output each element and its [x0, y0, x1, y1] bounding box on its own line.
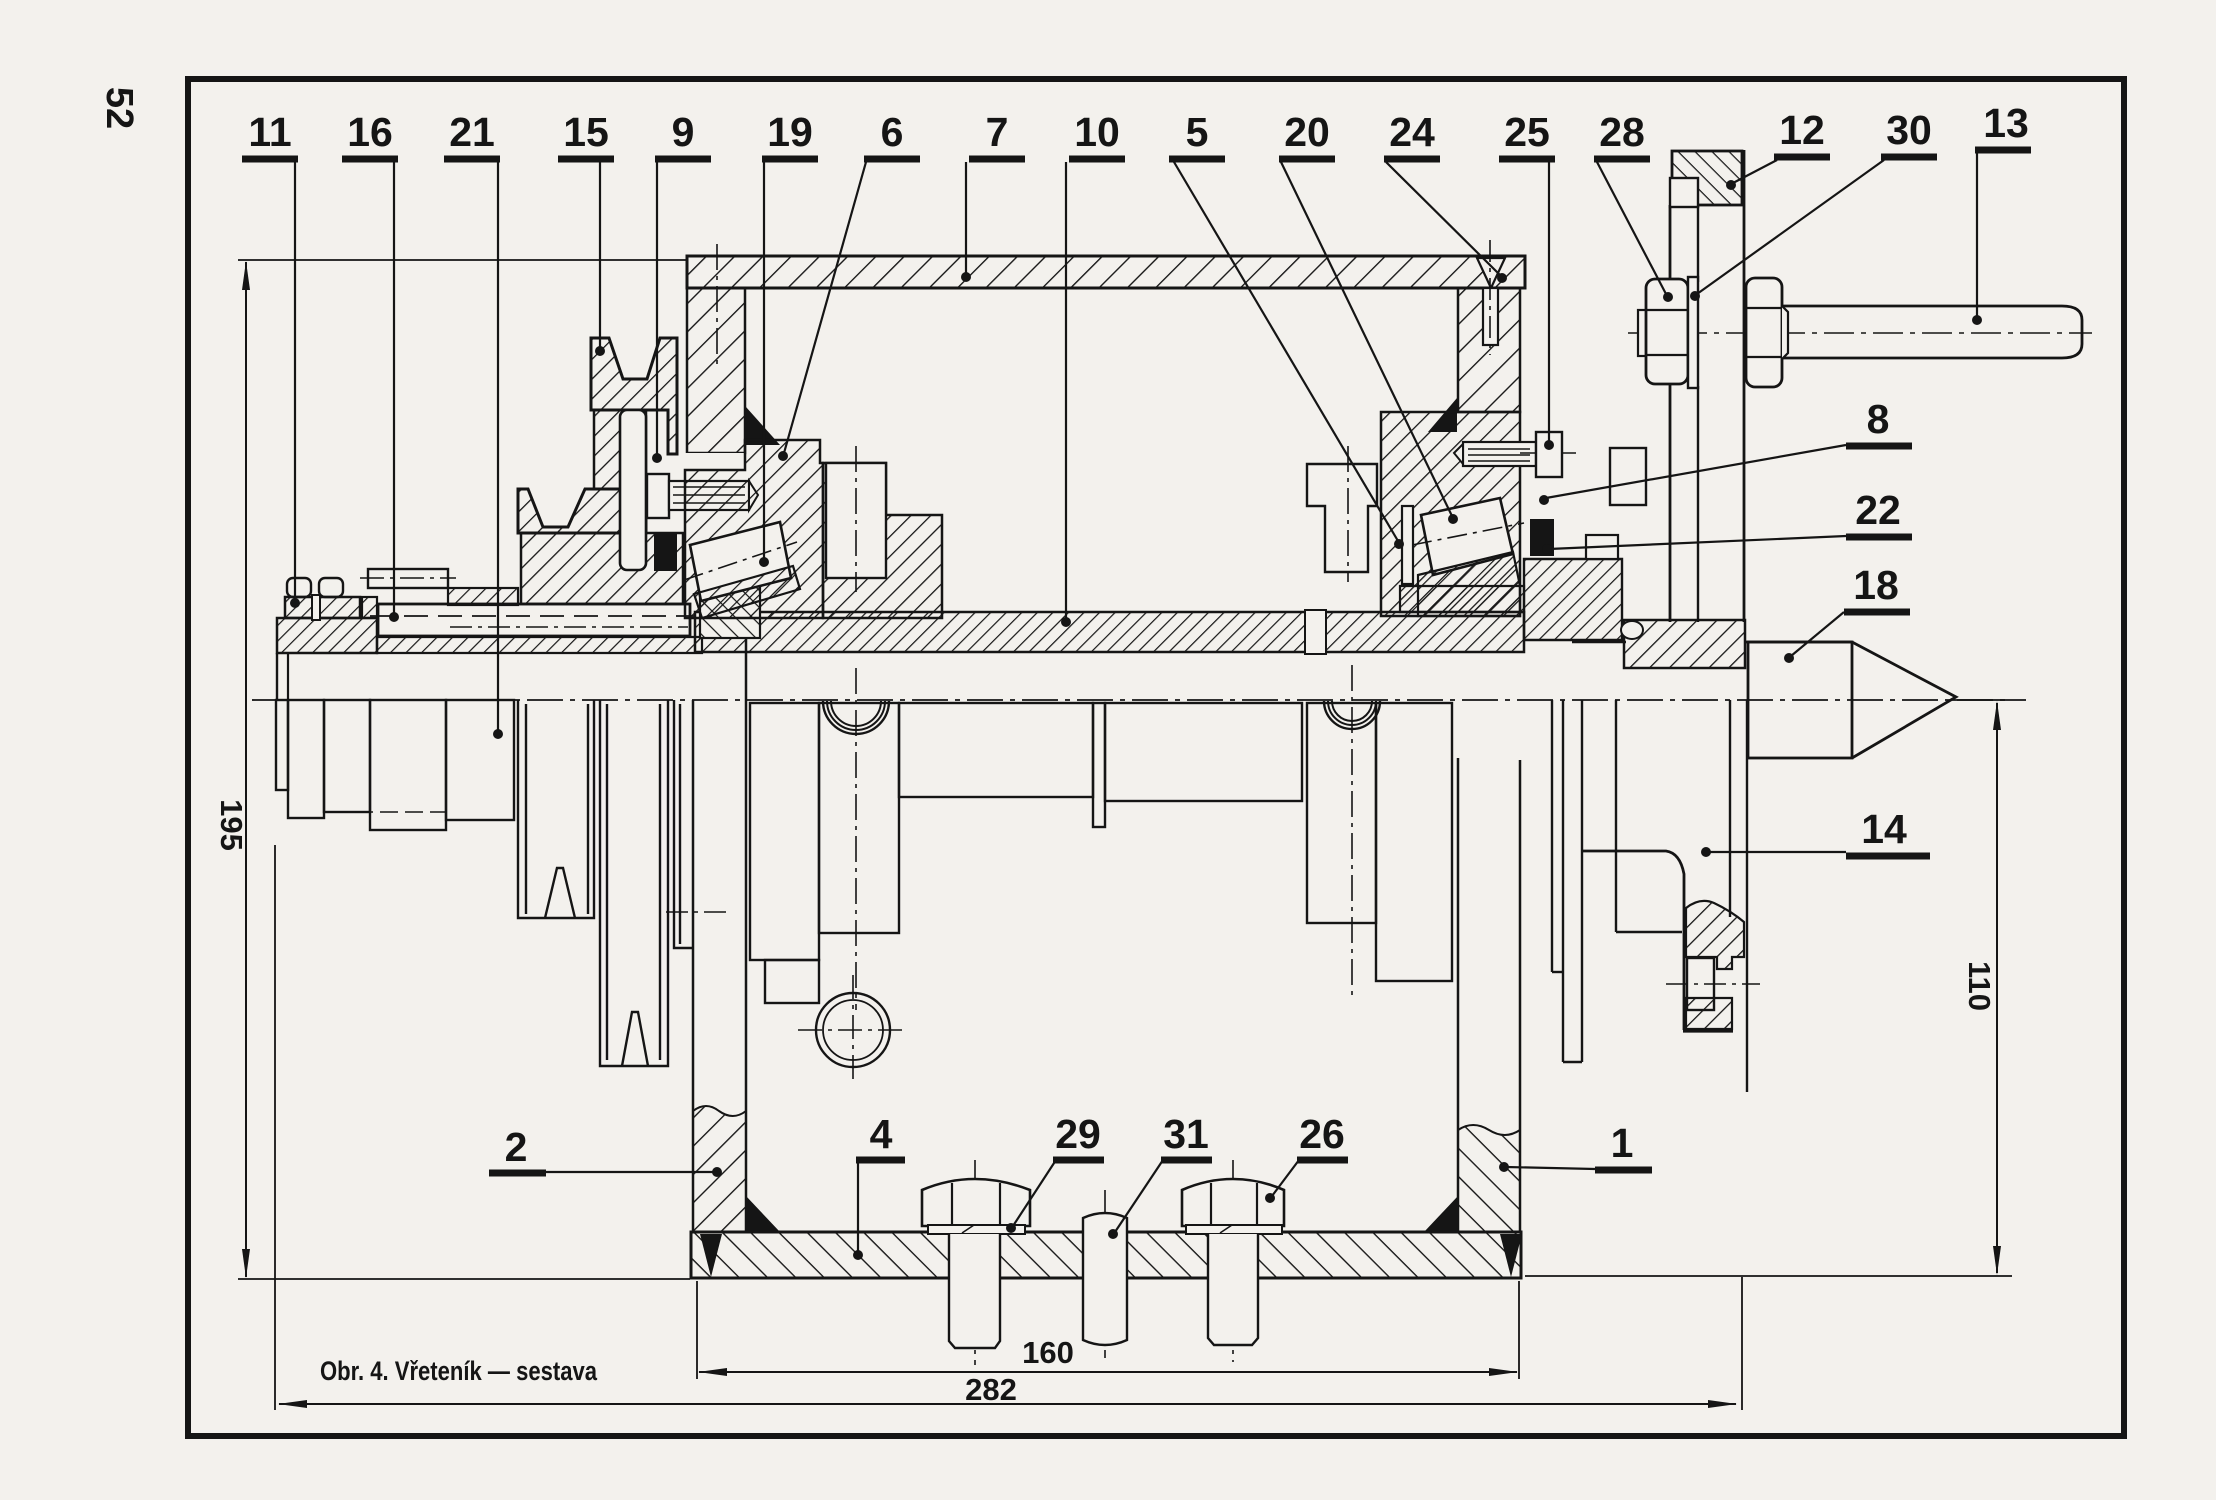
- svg-text:6: 6: [881, 109, 904, 155]
- svg-text:28: 28: [1599, 109, 1645, 155]
- svg-text:5: 5: [1186, 109, 1209, 155]
- svg-text:13: 13: [1983, 100, 2029, 146]
- svg-text:1: 1: [1611, 1120, 1634, 1166]
- svg-text:20: 20: [1284, 109, 1330, 155]
- svg-text:21: 21: [449, 109, 495, 155]
- svg-text:9: 9: [672, 109, 695, 155]
- svg-text:282: 282: [965, 1372, 1017, 1407]
- svg-text:10: 10: [1074, 109, 1120, 155]
- svg-text:25: 25: [1504, 109, 1550, 155]
- svg-text:16: 16: [347, 109, 393, 155]
- svg-text:19: 19: [767, 109, 813, 155]
- svg-text:Obr. 4. Vřeteník — sestava: Obr. 4. Vřeteník — sestava: [320, 1356, 598, 1386]
- svg-text:22: 22: [1855, 487, 1901, 533]
- svg-text:8: 8: [1867, 396, 1890, 442]
- svg-text:195: 195: [214, 799, 249, 851]
- svg-text:11: 11: [248, 109, 291, 155]
- svg-text:4: 4: [870, 1111, 893, 1157]
- svg-text:110: 110: [1962, 961, 1997, 1011]
- svg-text:15: 15: [563, 109, 609, 155]
- svg-text:24: 24: [1389, 109, 1435, 155]
- svg-text:29: 29: [1055, 1111, 1101, 1157]
- svg-text:52: 52: [98, 87, 140, 129]
- svg-text:14: 14: [1861, 806, 1907, 852]
- svg-text:12: 12: [1779, 107, 1825, 153]
- svg-text:26: 26: [1299, 1111, 1345, 1157]
- svg-text:18: 18: [1853, 562, 1899, 608]
- svg-text:7: 7: [986, 109, 1009, 155]
- svg-text:160: 160: [1022, 1335, 1074, 1370]
- svg-text:31: 31: [1163, 1111, 1209, 1157]
- svg-text:30: 30: [1886, 107, 1932, 153]
- svg-text:2: 2: [505, 1124, 528, 1170]
